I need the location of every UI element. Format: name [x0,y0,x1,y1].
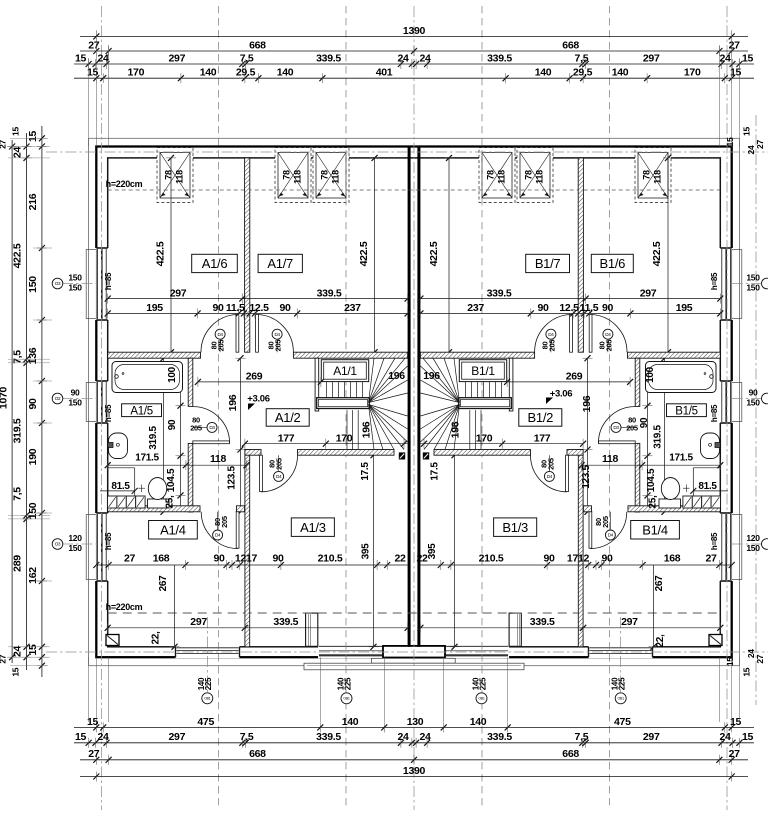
svg-text:D4: D4 [276,474,282,479]
svg-text:7,5: 7,5 [12,350,24,364]
svg-text:7,5: 7,5 [12,487,24,501]
svg-text:27: 27 [0,140,8,149]
svg-text:339.5: 339.5 [530,616,555,628]
svg-text:90: 90 [749,388,758,398]
svg-text:118: 118 [602,453,618,465]
svg-text:168: 168 [664,553,681,565]
svg-text:1070: 1070 [0,386,10,409]
svg-text:90: 90 [213,553,225,565]
svg-text:90: 90 [71,388,80,398]
svg-text:17.5: 17.5 [430,462,441,481]
svg-text:27: 27 [755,140,765,149]
svg-text:210.5: 210.5 [479,553,504,565]
svg-text:205: 205 [548,340,557,352]
svg-text:196: 196 [361,421,373,438]
svg-text:150: 150 [68,398,82,408]
svg-text:118: 118 [210,453,226,465]
svg-text:B1/3: B1/3 [502,520,528,535]
svg-text:78: 78 [524,170,534,180]
svg-text:D4: D4 [217,332,223,337]
svg-text:205: 205 [217,340,226,352]
svg-text:267: 267 [158,575,169,592]
svg-text:27: 27 [729,748,741,760]
svg-text:24: 24 [419,52,431,64]
svg-text:B1/1: B1/1 [471,364,495,378]
svg-text:339.5: 339.5 [487,731,512,743]
svg-text:7,5: 7,5 [240,731,254,743]
svg-text:90: 90 [601,553,613,565]
svg-text:B1/2: B1/2 [528,410,554,425]
svg-text:7,5: 7,5 [240,52,254,64]
svg-text:195: 195 [676,302,693,314]
svg-text:A1/1: A1/1 [333,364,357,378]
svg-text:27: 27 [705,553,717,565]
svg-text:B1/7: B1/7 [535,256,561,271]
svg-text:475: 475 [614,716,631,728]
svg-text:196: 196 [388,370,405,382]
svg-text:D4: D4 [605,332,611,337]
svg-text:339.5: 339.5 [487,287,512,299]
svg-text:17.5: 17.5 [360,462,371,481]
svg-text:118: 118 [497,170,507,184]
svg-text:h=85: h=85 [710,272,719,290]
svg-text:12.5: 12.5 [249,302,269,314]
svg-text:216: 216 [27,193,39,210]
svg-text:A1/5: A1/5 [130,405,152,417]
svg-text:22,: 22, [655,634,666,648]
svg-text:120: 120 [746,533,760,543]
svg-text:225: 225 [478,677,487,690]
svg-text:210.5: 210.5 [318,553,343,565]
svg-text:15: 15 [725,137,735,146]
svg-text:668: 668 [249,39,266,51]
svg-text:7,5: 7,5 [575,731,589,743]
svg-text:196: 196 [450,421,462,438]
svg-text:177: 177 [278,432,295,444]
svg-text:196: 196 [227,394,239,411]
svg-text:h=85: h=85 [710,404,719,422]
svg-text:h=220cm: h=220cm [106,602,143,612]
svg-text:B1/4: B1/4 [642,522,668,537]
svg-text:297: 297 [643,731,660,743]
svg-text:130: 130 [407,716,424,728]
svg-text:15: 15 [742,731,754,743]
svg-text:1217: 1217 [235,553,258,565]
svg-text:D4: D4 [548,332,554,337]
svg-text:15: 15 [11,667,21,676]
svg-text:668: 668 [249,748,266,760]
svg-text:225: 225 [618,677,627,690]
svg-text:422.5: 422.5 [428,241,440,266]
svg-text:h=85: h=85 [104,404,113,422]
svg-text:29.5: 29.5 [573,67,593,79]
svg-text:140: 140 [342,716,359,728]
svg-text:150: 150 [27,502,39,519]
svg-text:297: 297 [170,287,187,299]
svg-text:100: 100 [167,366,178,383]
svg-text:27: 27 [729,39,741,51]
svg-text:24: 24 [397,52,409,64]
svg-text:D4: D4 [608,533,614,538]
svg-text:O3: O3 [55,542,61,547]
svg-text:15: 15 [742,127,752,136]
svg-text:123.5: 123.5 [227,466,238,490]
svg-text:170: 170 [684,67,701,79]
svg-text:297: 297 [168,731,185,743]
svg-text:289: 289 [12,555,24,572]
svg-text:150: 150 [68,543,82,553]
svg-text:319.5: 319.5 [148,426,159,450]
svg-text:15: 15 [75,731,87,743]
svg-text:D3: D3 [209,425,215,430]
svg-text:140: 140 [470,716,487,728]
svg-text:205: 205 [190,424,202,433]
svg-text:196: 196 [581,395,593,412]
svg-text:118: 118 [331,170,341,184]
svg-text:24: 24 [12,147,24,159]
svg-text:120: 120 [68,533,82,543]
svg-text:78: 78 [642,170,652,180]
svg-text:24: 24 [97,52,109,64]
svg-text:D4: D4 [547,474,553,479]
svg-text:B1/6: B1/6 [600,256,626,271]
svg-text:A1/3: A1/3 [300,520,326,535]
svg-text:150: 150 [68,273,82,283]
svg-text:395: 395 [361,543,372,560]
svg-text:140: 140 [277,67,294,79]
svg-text:90: 90 [272,553,284,565]
svg-text:140: 140 [200,67,217,79]
svg-text:297: 297 [643,52,660,64]
svg-text:205: 205 [274,340,283,352]
svg-text:22: 22 [394,553,406,565]
svg-text:136: 136 [27,347,39,364]
svg-text:237: 237 [344,302,361,314]
svg-text:90: 90 [27,398,39,410]
svg-text:90: 90 [639,417,650,428]
svg-text:90: 90 [279,302,291,314]
svg-text:171.5: 171.5 [669,453,693,464]
svg-text:22,: 22, [151,631,162,645]
svg-text:O2: O2 [55,396,61,401]
svg-text:D4: D4 [274,332,280,337]
svg-text:7,5: 7,5 [575,52,589,64]
svg-text:24: 24 [12,646,24,658]
svg-text:118: 118 [175,170,185,184]
svg-text:A1/7: A1/7 [267,256,293,271]
svg-text:104.5: 104.5 [166,468,177,492]
svg-text:205: 205 [605,340,614,352]
svg-text:OB1: OB1 [204,697,211,701]
svg-text:140: 140 [612,67,629,79]
svg-text:319.5: 319.5 [12,418,24,443]
svg-text:90: 90 [537,302,549,314]
svg-text:h=85: h=85 [104,532,113,550]
svg-text:24: 24 [397,731,409,743]
svg-text:170: 170 [476,432,493,444]
svg-text:A1/2: A1/2 [275,410,301,425]
svg-text:339.5: 339.5 [273,616,298,628]
svg-text:78: 78 [320,170,330,180]
svg-text:B1/5: B1/5 [675,405,697,417]
svg-text:118: 118 [653,170,663,184]
svg-text:OB1: OB1 [343,697,350,701]
svg-text:297: 297 [190,616,207,628]
svg-text:170: 170 [127,67,144,79]
svg-text:422.5: 422.5 [155,241,167,266]
svg-text:27: 27 [88,39,100,51]
svg-text:15: 15 [742,52,754,64]
svg-text:A1/4: A1/4 [160,522,186,537]
svg-text:90: 90 [212,302,224,314]
svg-text:27: 27 [0,654,8,663]
svg-text:118: 118 [535,170,545,184]
svg-text:140: 140 [535,67,552,79]
svg-text:237: 237 [467,302,484,314]
svg-text:150: 150 [746,398,760,408]
svg-text:1390: 1390 [403,25,426,37]
svg-text:81.5: 81.5 [698,481,717,492]
svg-text:15: 15 [742,667,752,676]
svg-text:339.5: 339.5 [316,731,341,743]
svg-text:81.5: 81.5 [111,481,130,492]
svg-text:205: 205 [275,458,284,470]
svg-text:15: 15 [27,131,39,143]
svg-text:78: 78 [486,170,496,180]
svg-text:15: 15 [75,52,87,64]
svg-text:422.5: 422.5 [651,241,663,266]
svg-text:27: 27 [755,654,765,663]
svg-text:24: 24 [97,731,109,743]
svg-text:267: 267 [654,575,665,592]
svg-text:150: 150 [68,283,82,293]
svg-text:+3.06: +3.06 [247,394,270,405]
svg-text:78: 78 [282,170,292,180]
svg-text:11.5: 11.5 [226,302,245,314]
svg-text:205: 205 [601,516,610,528]
svg-text:D4: D4 [215,533,221,538]
svg-text:25,: 25, [648,495,659,509]
svg-text:24: 24 [719,52,731,64]
svg-text:150: 150 [746,283,760,293]
svg-text:319.5: 319.5 [653,425,664,449]
svg-text:297: 297 [168,52,185,64]
svg-text:196: 196 [423,370,440,382]
svg-text:177: 177 [534,432,551,444]
svg-text:297: 297 [640,287,657,299]
svg-text:668: 668 [562,748,579,760]
svg-text:422.5: 422.5 [12,243,24,268]
svg-text:168: 168 [153,553,170,565]
svg-text:422.5: 422.5 [358,241,370,266]
svg-text:90: 90 [167,419,178,430]
svg-text:205: 205 [626,424,638,433]
svg-text:339.5: 339.5 [316,52,341,64]
svg-text:11.5: 11.5 [580,302,599,314]
svg-text:OB1: OB1 [618,697,625,701]
svg-text:190: 190 [27,448,39,465]
svg-text:171.5: 171.5 [135,453,159,464]
svg-text:OB1: OB1 [478,697,485,701]
svg-text:90: 90 [543,553,555,565]
svg-text:162: 162 [27,567,39,584]
svg-text:104.5: 104.5 [646,468,657,492]
svg-text:395: 395 [427,543,438,560]
svg-text:24: 24 [719,731,731,743]
svg-text:205: 205 [547,458,556,470]
svg-text:15: 15 [27,644,39,656]
svg-text:123.5: 123.5 [581,465,592,489]
svg-text:A1/6: A1/6 [202,256,228,271]
svg-text:668: 668 [562,39,579,51]
svg-text:1390: 1390 [403,765,426,777]
svg-text:+3.06: +3.06 [550,389,573,400]
svg-text:h=85: h=85 [710,532,719,550]
svg-text:15: 15 [725,657,735,666]
svg-text:29.5: 29.5 [236,67,256,79]
svg-text:339.5: 339.5 [317,287,342,299]
svg-text:D3: D3 [613,425,619,430]
svg-text:170: 170 [336,432,353,444]
svg-text:475: 475 [197,716,214,728]
svg-text:100: 100 [645,366,656,383]
svg-text:118: 118 [293,170,303,184]
svg-text:205: 205 [220,516,229,528]
svg-text:269: 269 [246,371,263,383]
svg-text:90: 90 [602,302,614,314]
svg-text:150: 150 [27,276,39,293]
svg-text:O3: O3 [55,281,61,286]
svg-text:150: 150 [746,543,760,553]
svg-text:195: 195 [146,302,163,314]
svg-text:15: 15 [11,127,21,136]
svg-text:12.5: 12.5 [559,302,579,314]
svg-text:h=85: h=85 [104,272,113,290]
svg-text:225: 225 [343,677,352,690]
svg-text:25,: 25, [165,495,176,509]
svg-text:401: 401 [376,67,393,79]
svg-text:150: 150 [746,273,760,283]
svg-text:1712: 1712 [567,553,590,565]
svg-text:339.5: 339.5 [487,52,512,64]
svg-text:269: 269 [566,371,583,383]
svg-text:225: 225 [204,677,213,690]
svg-text:78: 78 [164,170,174,180]
svg-text:27: 27 [88,748,100,760]
svg-text:24: 24 [419,731,431,743]
svg-text:27: 27 [124,553,136,565]
svg-text:297: 297 [621,616,638,628]
svg-text:h=220cm: h=220cm [106,179,143,189]
